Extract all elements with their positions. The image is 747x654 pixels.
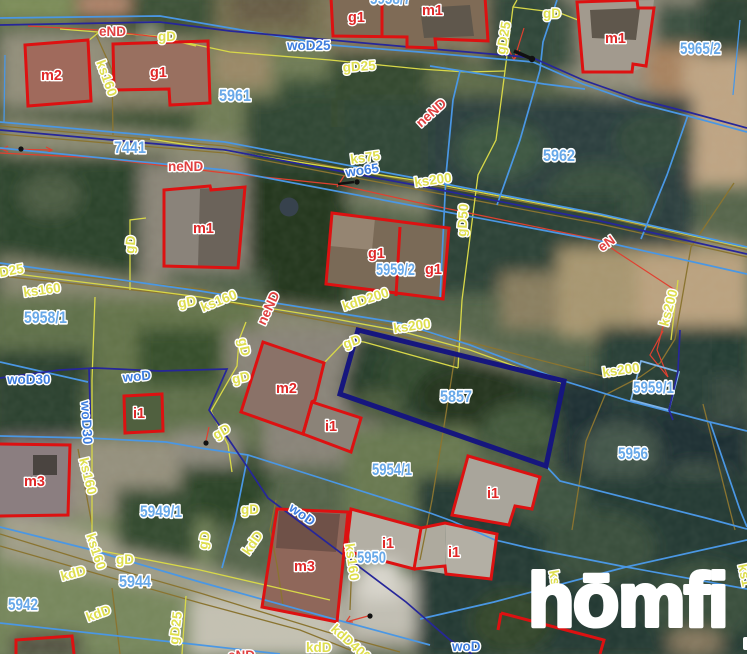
svg-text:hōmfi: hōmfi xyxy=(528,558,727,643)
svg-text:i1: i1 xyxy=(487,486,499,502)
svg-text:i1: i1 xyxy=(133,406,145,422)
svg-text:5857: 5857 xyxy=(440,387,472,406)
svg-text:woD: woD xyxy=(451,639,481,654)
svg-text:gD: gD xyxy=(241,502,259,517)
svg-text:m1: m1 xyxy=(422,3,443,19)
svg-text:5954/1: 5954/1 xyxy=(372,460,412,479)
svg-text:5959/2: 5959/2 xyxy=(376,260,415,279)
svg-text:i1: i1 xyxy=(382,536,394,552)
svg-text:m1: m1 xyxy=(193,221,214,237)
svg-text:gD: gD xyxy=(116,552,134,567)
svg-text:m2: m2 xyxy=(41,68,62,84)
svg-text:5962: 5962 xyxy=(543,146,575,165)
svg-text:gD: gD xyxy=(543,6,561,21)
svg-text:m2: m2 xyxy=(276,381,297,397)
svg-text:5944: 5944 xyxy=(119,572,151,591)
svg-text:woD30: woD30 xyxy=(6,372,51,387)
svg-text:m1: m1 xyxy=(605,31,626,47)
svg-text:woD: woD xyxy=(121,368,152,386)
svg-text:eND: eND xyxy=(99,24,126,39)
svg-text:m3: m3 xyxy=(294,559,315,575)
svg-text:7441: 7441 xyxy=(114,138,146,157)
svg-text:eND: eND xyxy=(228,648,255,654)
svg-text:g1: g1 xyxy=(150,65,167,81)
svg-text:kdD: kdD xyxy=(306,640,332,654)
svg-text:gD: gD xyxy=(158,29,176,44)
svg-text:5965/2: 5965/2 xyxy=(680,39,721,58)
svg-text:neND: neND xyxy=(168,159,204,174)
svg-text:gD: gD xyxy=(122,235,139,254)
svg-text:m3: m3 xyxy=(24,474,45,490)
svg-text:5959/1: 5959/1 xyxy=(633,378,674,397)
svg-text:g1: g1 xyxy=(348,10,365,26)
svg-text:gD: gD xyxy=(177,293,198,311)
svg-text:g1: g1 xyxy=(368,246,385,262)
svg-text:gD50: gD50 xyxy=(454,203,471,237)
svg-text:i1: i1 xyxy=(325,419,337,435)
svg-text:5956: 5956 xyxy=(618,444,648,463)
svg-text:gD25: gD25 xyxy=(342,58,376,75)
svg-text:woD25: woD25 xyxy=(286,38,331,53)
svg-text:5958/1: 5958/1 xyxy=(24,308,67,327)
svg-text:5949/1: 5949/1 xyxy=(140,502,182,521)
svg-text:i1: i1 xyxy=(448,545,460,561)
svg-text:5942: 5942 xyxy=(8,595,38,614)
svg-text:gD: gD xyxy=(195,530,213,551)
svg-text:g1: g1 xyxy=(425,262,442,278)
svg-text:5958/7: 5958/7 xyxy=(370,0,411,8)
svg-text:5961: 5961 xyxy=(219,86,251,105)
svg-text:woD30: woD30 xyxy=(78,399,95,444)
